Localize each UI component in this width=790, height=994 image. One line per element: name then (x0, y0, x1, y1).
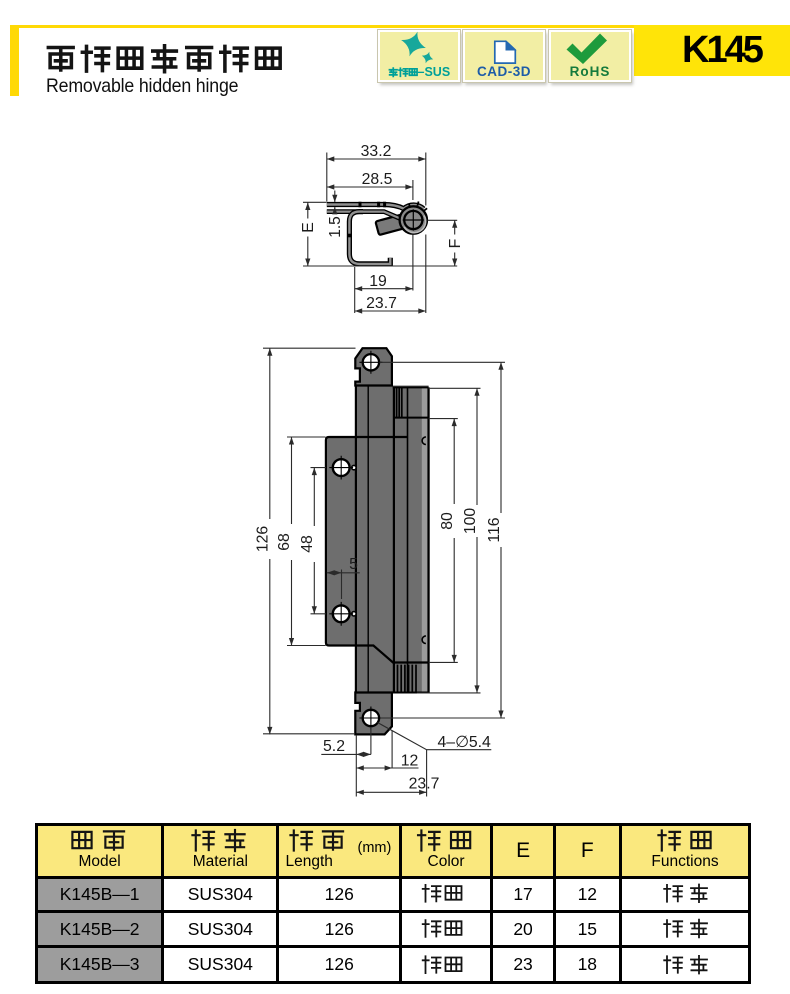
svg-text:23.7: 23.7 (366, 295, 397, 312)
svg-text:F: F (447, 238, 464, 248)
svg-text:19: 19 (369, 273, 387, 290)
svg-text:100: 100 (462, 508, 479, 535)
svg-text:1.5: 1.5 (327, 216, 344, 238)
svg-text:5: 5 (349, 556, 358, 573)
svg-text:116: 116 (486, 517, 503, 542)
svg-text:4–∅5.4: 4–∅5.4 (438, 734, 492, 751)
svg-text:33.2: 33.2 (361, 143, 392, 160)
svg-text:48: 48 (299, 535, 316, 553)
svg-text:126: 126 (255, 526, 272, 553)
svg-text:80: 80 (439, 512, 456, 530)
svg-text:23.7: 23.7 (409, 776, 440, 793)
svg-text:68: 68 (276, 533, 293, 551)
svg-text:E: E (300, 222, 317, 233)
svg-text:28.5: 28.5 (362, 171, 393, 188)
svg-text:5.2: 5.2 (323, 738, 345, 755)
svg-text:12: 12 (401, 753, 419, 770)
